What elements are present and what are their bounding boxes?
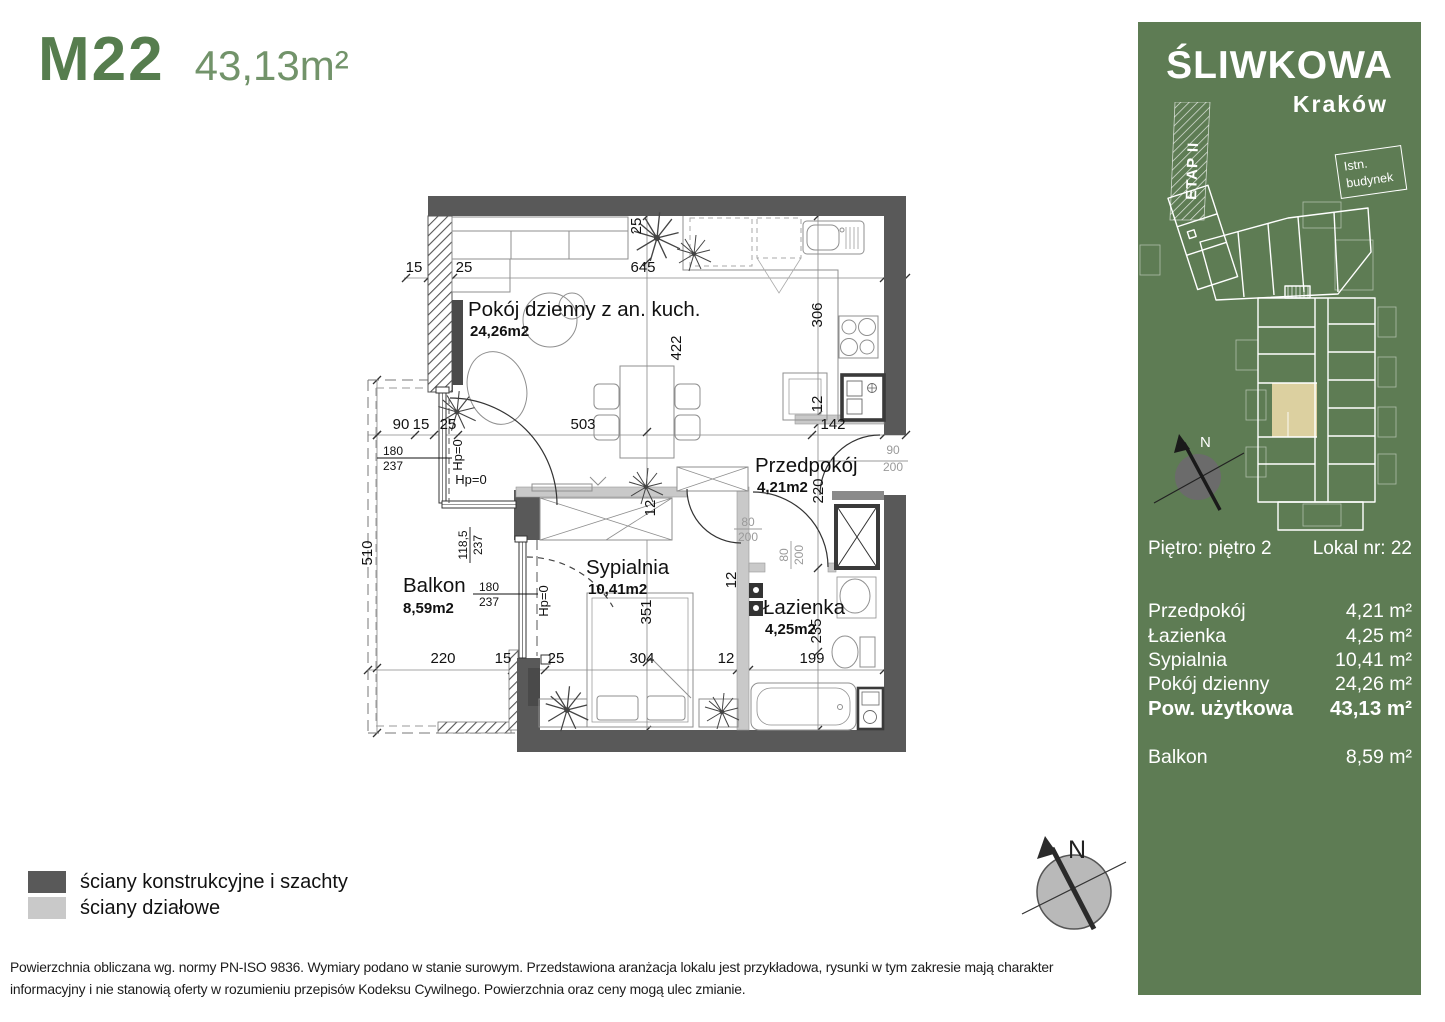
svg-text:25: 25 bbox=[548, 650, 565, 667]
legend-partition-row: ściany działowe bbox=[28, 895, 348, 921]
legend-structural-row: ściany konstrukcyjne i szachty bbox=[28, 869, 348, 895]
svg-text:12: 12 bbox=[718, 650, 735, 667]
balcony-slab-hatch bbox=[438, 722, 511, 733]
washing-machine bbox=[858, 688, 883, 729]
highlighted-unit bbox=[1272, 383, 1317, 437]
svg-text:12: 12 bbox=[723, 572, 740, 589]
svg-text:220: 220 bbox=[810, 478, 827, 503]
svg-text:199: 199 bbox=[799, 650, 824, 667]
table-row-total: Pow. użytkowa 43,13 m² bbox=[1148, 697, 1412, 721]
svg-text:10,41m2: 10,41m2 bbox=[588, 581, 647, 598]
lokal-label: Lokal nr: 22 bbox=[1313, 538, 1412, 560]
table-row-balcony: Balkon 8,59 m² bbox=[1148, 746, 1412, 769]
svg-text:budynek: budynek bbox=[1345, 170, 1394, 191]
floorplan-sheet: M2243,13m² bbox=[0, 0, 1445, 1022]
svg-text:4,21m2: 4,21m2 bbox=[757, 479, 808, 496]
svg-text:503: 503 bbox=[570, 416, 595, 433]
table-row: Łazienka 4,25 m² bbox=[1148, 625, 1412, 648]
svg-text:15: 15 bbox=[413, 416, 430, 433]
site-compass-n-label: N bbox=[1200, 434, 1211, 451]
svg-text:Istn.: Istn. bbox=[1343, 156, 1368, 173]
svg-text:8,59m2: 8,59m2 bbox=[403, 600, 454, 617]
svg-text:25: 25 bbox=[456, 259, 473, 276]
insulated-wall-hatch bbox=[428, 216, 452, 392]
kitchen-sink-unit bbox=[842, 375, 884, 420]
svg-text:24,26m2: 24,26m2 bbox=[470, 323, 529, 340]
compass-n-label: N bbox=[1068, 836, 1086, 864]
svg-text:200: 200 bbox=[792, 545, 806, 565]
svg-text:351: 351 bbox=[638, 599, 655, 624]
compass: N bbox=[1022, 836, 1126, 929]
table-row: Przedpokój 4,21 m² bbox=[1148, 600, 1412, 623]
shaft-box bbox=[836, 506, 878, 568]
svg-text:200: 200 bbox=[883, 460, 903, 474]
svg-text:200: 200 bbox=[738, 530, 758, 544]
svg-text:304: 304 bbox=[629, 650, 654, 667]
svg-text:118,5: 118,5 bbox=[456, 530, 470, 559]
floor-label: Piętro: piętro 2 bbox=[1148, 538, 1272, 559]
svg-text:12: 12 bbox=[642, 500, 659, 517]
disclaimer: Powierzchnia obliczana wg. normy PN-ISO … bbox=[10, 956, 1114, 1000]
svg-text:15: 15 bbox=[406, 259, 423, 276]
svg-text:645: 645 bbox=[630, 259, 655, 276]
svg-text:Hp=0: Hp=0 bbox=[536, 585, 551, 616]
svg-text:Hp=0: Hp=0 bbox=[455, 472, 486, 487]
etap-label: ETAP II bbox=[1183, 141, 1202, 200]
unit-info-row: Piętro: piętro 2 Lokal nr: 22 bbox=[1148, 538, 1412, 560]
svg-text:12: 12 bbox=[809, 396, 826, 413]
table-row: Pokój dzienny 24,26 m² bbox=[1148, 673, 1412, 696]
svg-text:237: 237 bbox=[383, 459, 403, 473]
room-label-hall: Przedpokój bbox=[755, 454, 858, 477]
legend: ściany konstrukcyjne i szachty ściany dz… bbox=[28, 869, 348, 921]
svg-text:180: 180 bbox=[383, 444, 403, 458]
svg-text:180: 180 bbox=[479, 580, 499, 594]
room-label-bathroom: Łazienka bbox=[763, 596, 846, 619]
room-label-living: Pokój dzienny z an. kuch. bbox=[468, 298, 700, 321]
legend-structural-label: ściany konstrukcyjne i szachty bbox=[80, 871, 348, 894]
svg-text:142: 142 bbox=[820, 416, 845, 433]
svg-text:4,25m2: 4,25m2 bbox=[765, 621, 816, 638]
room-label-bedroom: Sypialnia bbox=[586, 556, 670, 579]
entry-threshold bbox=[832, 491, 884, 500]
svg-text:237: 237 bbox=[471, 535, 485, 555]
svg-text:80: 80 bbox=[777, 548, 791, 562]
legend-structural-swatch bbox=[28, 871, 66, 893]
room-label-balcony: Balkon bbox=[403, 574, 466, 597]
svg-text:15: 15 bbox=[495, 650, 512, 667]
svg-text:25: 25 bbox=[440, 416, 457, 433]
svg-text:237: 237 bbox=[479, 595, 499, 609]
legend-partition-swatch bbox=[28, 897, 66, 919]
site-plan: ETAP II bbox=[1138, 102, 1421, 542]
table-row: Sypialnia 10,41 m² bbox=[1148, 649, 1412, 672]
svg-text:510: 510 bbox=[359, 540, 376, 565]
room-labels: Pokój dzienny z an. kuch. 24,26m2 Przedp… bbox=[403, 298, 858, 638]
legend-partition-label: ściany działowe bbox=[80, 897, 220, 920]
svg-text:90: 90 bbox=[886, 443, 900, 457]
project-panel: ŚLIWKOWA Kraków ETAP II bbox=[1138, 22, 1421, 995]
svg-text:306: 306 bbox=[809, 302, 826, 327]
svg-text:25: 25 bbox=[628, 218, 645, 235]
svg-text:422: 422 bbox=[668, 335, 685, 360]
svg-text:80: 80 bbox=[741, 515, 755, 529]
svg-text:Hp=0: Hp=0 bbox=[450, 439, 465, 470]
site-compass: N bbox=[1154, 434, 1244, 510]
existing-building-label: Istn. budynek bbox=[1335, 146, 1406, 199]
disclaimer-line-1: Powierzchnia obliczana wg. normy PN-ISO … bbox=[10, 956, 1114, 978]
svg-text:90: 90 bbox=[393, 416, 410, 433]
svg-text:220: 220 bbox=[430, 650, 455, 667]
project-name: ŚLIWKOWA bbox=[1138, 44, 1421, 88]
disclaimer-line-2: informacyjny i nie stanowią oferty w roz… bbox=[10, 978, 1114, 1000]
